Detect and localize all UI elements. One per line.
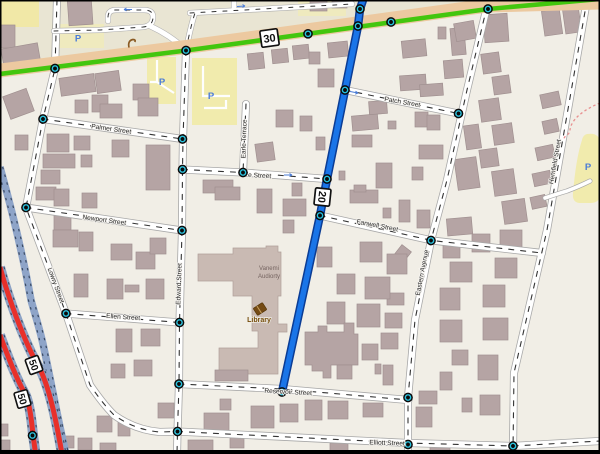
svg-text:20: 20: [315, 190, 328, 203]
svg-text:P: P: [208, 91, 215, 102]
svg-text:P: P: [159, 77, 166, 88]
svg-text:Audiorty: Audiorty: [258, 274, 280, 280]
svg-text:Vanemi: Vanemi: [259, 266, 279, 272]
svg-text:Edward Street: Edward Street: [175, 263, 183, 305]
svg-text:30: 30: [263, 32, 277, 46]
svg-text:Earle Terrace: Earle Terrace: [240, 119, 248, 159]
svg-text:P: P: [585, 162, 592, 173]
svg-text:Elliott Street: Elliott Street: [369, 439, 405, 447]
svg-text:P: P: [75, 34, 82, 45]
svg-text:Library: Library: [247, 317, 271, 324]
svg-text:e Street: e Street: [248, 172, 272, 180]
